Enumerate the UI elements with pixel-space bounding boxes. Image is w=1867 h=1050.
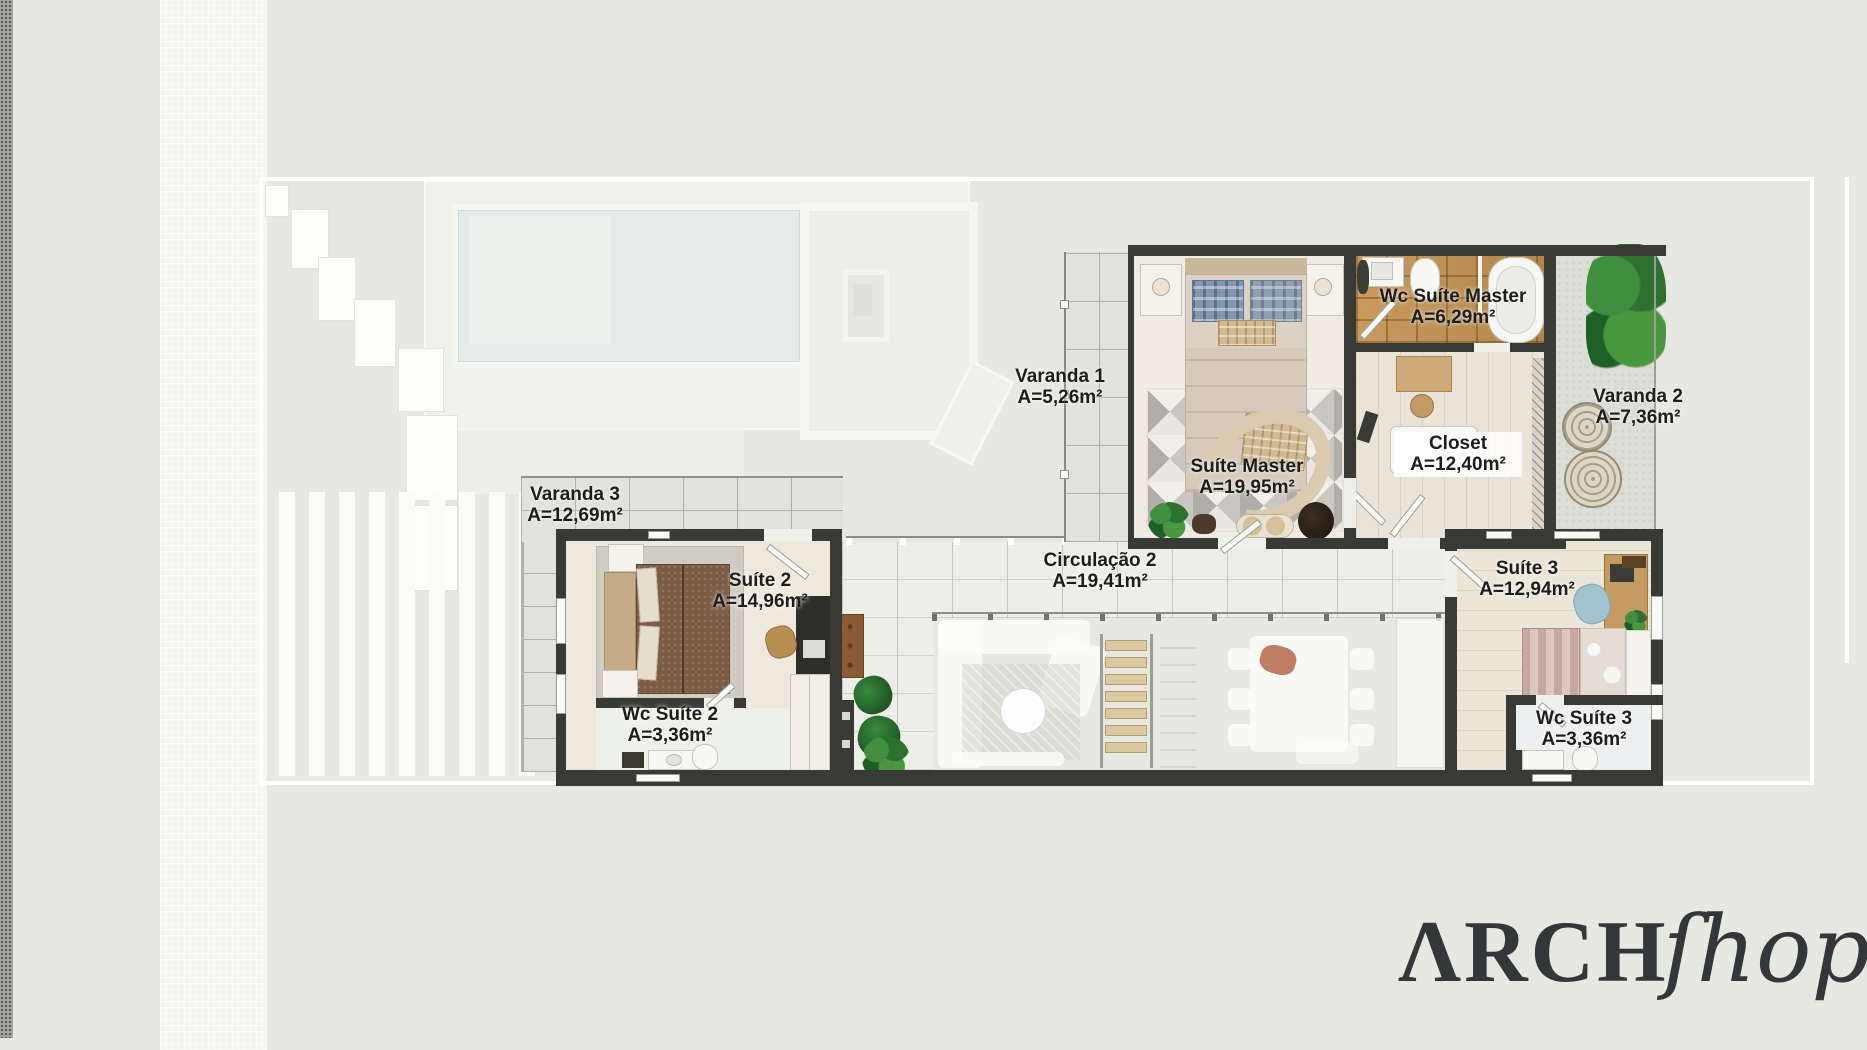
step-stone [407,416,457,500]
stair-tread [1105,691,1147,702]
toilet [692,744,718,770]
sink-counter [1522,750,1564,770]
stair-tread [1105,657,1147,668]
suite3-bed-duvet [1580,628,1626,700]
corner-desk [602,670,638,698]
logo-script-part: ſhop [1663,896,1867,1003]
room-label-varanda-1: Varanda 1A=5,26m² [998,366,1122,409]
step-stone [319,258,355,320]
vanity-stool [1410,394,1434,418]
pillow [636,567,660,622]
window [556,598,566,644]
desk-shelf [1622,556,1646,568]
window [1486,531,1512,539]
suite3-bed-sheet [1626,630,1651,700]
door-opening [1344,478,1356,528]
floor-plant [1148,502,1190,540]
ghost-tv-bench [952,752,1064,766]
wall-bottom [556,770,1663,786]
lamp [1314,278,1332,296]
room-label-wc-suite-master: Wc Suíte MasterA=6,29m² [1360,286,1546,329]
pillow [1192,280,1244,322]
wardrobe-hatch [1532,358,1544,536]
window [648,531,670,539]
ghost-side-table [1296,742,1358,764]
pillow [636,625,660,680]
stairs-rail-left [1100,634,1103,768]
room-label-suite-master: Suíte MasterA=19,95m² [1154,456,1340,499]
wall [1128,245,1666,256]
ghost-dining-chair [1228,688,1252,710]
window-tick [1060,470,1069,479]
wall [830,529,842,786]
wall [1506,695,1663,705]
stair-tread [1105,725,1147,736]
sink-basin [1371,262,1393,280]
room-label-wc-suite-3: Wc Suíte 3A=3,36m² [1514,708,1654,751]
page-frame-right-line [1845,177,1849,663]
decor-plant-dark [1298,502,1334,540]
ghost-dining-chair [1228,648,1252,670]
ghost-dining-chair [1350,648,1374,670]
corridor-window-ticks [846,536,1064,545]
room-label-circulacao-2: Circulação 2A=19,41m² [1012,550,1188,593]
suite3-bed-pillows [1522,628,1580,700]
decor-basket [1192,514,1216,534]
bed-headboard [1185,258,1307,274]
room-label-wc-suite-2: Wc Suíte 2A=3,36m² [598,704,742,747]
pool-highlight [470,216,610,344]
ghost-cabinets [1396,618,1444,768]
window [556,674,566,714]
accent-pillow [1218,320,1276,346]
window-tick [1060,300,1069,309]
door-opening [1388,538,1440,549]
ghost-dining-chair [1228,724,1252,746]
window [636,774,680,782]
stair-tread [1105,742,1147,753]
stairs-rail-right [1150,634,1153,768]
lamp [1152,278,1170,296]
wall [556,529,566,786]
room-label-varanda-2: Varanda 2A=7,36m² [1574,386,1702,429]
stair-tread [1105,674,1147,685]
floor-plan-canvas: Varanda 1A=5,26m² Wc Suíte MasterA=6,29m… [0,0,1867,1050]
bath-mat [622,752,644,768]
stairs-second-flight-ghost [1160,636,1196,768]
rattan-pouf [1564,450,1622,508]
ghost-dining-chair [1350,688,1374,710]
step-stone [399,349,443,411]
room-label-varanda-3: Varanda 3A=12,69m² [503,484,647,527]
door-opening [1474,343,1510,352]
side-walkway-strip [160,0,267,1050]
ghost-coffee-table [1000,688,1046,734]
stair-tread [1105,640,1147,651]
vanity-desk [1396,356,1452,392]
wall [1128,245,1134,549]
sink-basin [666,754,682,766]
window [1532,774,1572,782]
window [1651,596,1663,640]
wardrobe [790,674,830,774]
wall [1356,343,1544,352]
logo-serif-part: ΛRCH [1398,904,1669,1001]
room-label-closet: ClosetA=12,40m² [1394,432,1522,477]
ghost-room-core [854,284,872,316]
step-stone [266,186,288,216]
step-stone [355,300,395,366]
door-opening [764,529,812,541]
left-edge-stipple [0,0,13,1038]
window [1554,531,1600,539]
room-label-suite-3: Suíte 3A=12,94m² [1462,558,1592,601]
stair-tread [1105,708,1147,719]
archshop-logo: ΛRCHſhop [1398,896,1867,1003]
deck-stripes [279,492,542,776]
pillow [1250,280,1302,322]
room-label-suite-2: Suíte 2A=14,96m² [690,570,830,613]
